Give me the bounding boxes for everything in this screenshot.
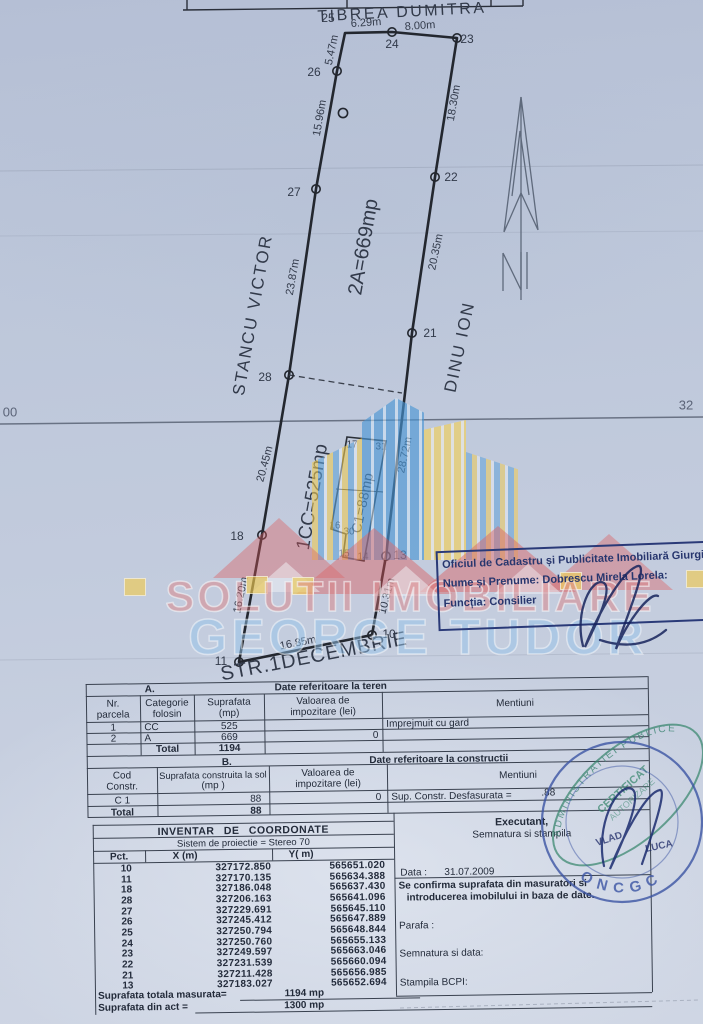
measure-label: 8.00m	[404, 19, 435, 33]
building-corner-label: 14	[357, 552, 368, 563]
col-header: (mp)	[194, 708, 264, 720]
parafa-label: Parafa :	[399, 920, 434, 931]
section-a-label: A.	[86, 683, 214, 696]
survey-point-markers	[235, 28, 461, 666]
cell-value: A	[144, 733, 151, 744]
measured-area-value: 1194 mp	[240, 988, 324, 1000]
point-label: 28	[258, 370, 271, 384]
confirm-text: introducerea imobilului in baza de date.	[407, 890, 595, 904]
date-label: Data :	[400, 867, 427, 878]
building-corner-label: 31	[375, 442, 386, 453]
scanned-cadastral-plan: TIBREA DUMITRA STANCU VICTOR DINU ION ST…	[0, 0, 703, 1024]
cell-value: 0	[264, 730, 378, 743]
point-label: 27	[287, 185, 300, 199]
building-corner-label: 30	[343, 527, 354, 538]
col-header: folosin	[140, 709, 194, 721]
cell-value: Sup. Constr. Desfasurata =	[391, 790, 511, 803]
cell-value: 0	[269, 792, 381, 805]
section-b-label: B.	[157, 756, 297, 769]
col-header: impozitare (lei)	[269, 778, 387, 791]
cadastral-form: A. Date referitoare la teren Nr. parcela…	[86, 674, 657, 1018]
cell-value: 1	[86, 722, 140, 734]
building-corner-label: 15	[338, 549, 349, 560]
point-label: 10	[382, 627, 395, 641]
cell-value: .88	[515, 787, 555, 799]
col-header: Mentiuni	[387, 768, 649, 783]
cell-value: 2	[86, 733, 140, 745]
total-label: Total	[87, 807, 157, 819]
cell-value: C 1	[87, 795, 157, 807]
point-label: 21	[423, 326, 436, 340]
deed-area-value: 1300 mp	[240, 1000, 324, 1012]
north-arrow-icon	[503, 97, 538, 300]
date-value: 31.07.2009	[444, 866, 494, 878]
parcel-boundary	[239, 32, 457, 662]
cell-value: CC	[144, 722, 159, 733]
deed-area-label: Suprafata din act =	[98, 1002, 188, 1014]
total-value: 1194	[195, 743, 265, 755]
paper-crease	[0, 165, 703, 171]
map-sheet-divider-line	[0, 417, 703, 424]
bcpi-stamp-label: Stampila BCPI:	[400, 977, 468, 989]
grid-coordinate-left: 00	[3, 405, 17, 420]
total-value: 88	[157, 806, 261, 818]
point-label: 25	[321, 11, 334, 25]
table-b-title: Date referitoare la constructii	[349, 753, 529, 767]
point-label: 24	[385, 37, 398, 51]
point-label: 18	[230, 529, 243, 543]
col-header: impozitare (lei)	[264, 706, 382, 719]
signature-date-label: Semnatura si data:	[399, 947, 483, 959]
col-header: (mp )	[157, 779, 269, 792]
col-header: Mentiuni	[382, 696, 648, 711]
paper-crease	[0, 231, 703, 236]
point-label: 22	[444, 170, 457, 184]
col-header: Pct.	[93, 851, 145, 863]
measured-area-label: Suprafata totala masurata=	[98, 989, 227, 1002]
point-label: 13	[393, 548, 406, 562]
measure-label: 6.29m	[350, 16, 381, 30]
executant-subtitle: Semnatura si stampila	[394, 827, 650, 842]
col-header: Y( m)	[273, 849, 329, 861]
point-label: 26	[307, 65, 320, 79]
cadastre-office-stamp: Oficiul de Cadastru și Publicitate Imobi…	[436, 541, 703, 631]
table-a-title: Date referitoare la teren	[266, 681, 396, 694]
point-label: 23	[460, 32, 473, 46]
grid-coordinate-right: 32	[679, 398, 693, 413]
point-label: 11	[215, 654, 227, 668]
col-header: Categorie	[140, 698, 194, 710]
col-header: X (m)	[148, 850, 222, 862]
col-header: Constr.	[87, 781, 157, 793]
col-header: parcela	[86, 709, 140, 721]
parcel-division-dashed-line	[289, 375, 402, 393]
col-header: Nr.	[86, 698, 140, 710]
total-label: Total	[141, 744, 195, 756]
cell-value: 88	[157, 794, 261, 806]
building-corner-label: 17	[346, 440, 357, 451]
cell-value: Imprejmuit cu gard	[386, 718, 469, 730]
building-corner-label: 16	[329, 521, 340, 532]
